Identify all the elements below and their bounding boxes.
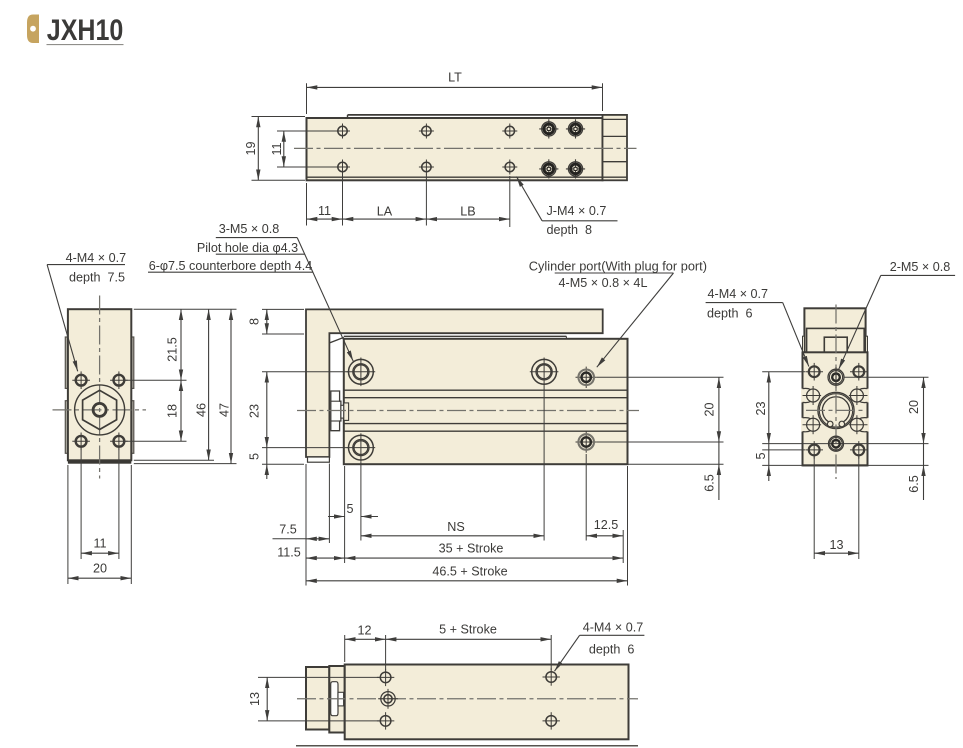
svg-text:11: 11 [318,204,331,218]
svg-text:5: 5 [346,502,353,516]
svg-text:depth 6: depth 6 [589,643,635,657]
svg-text:2-M5 × 0.8: 2-M5 × 0.8 [890,260,951,274]
svg-text:Cylinder port(With plug for po: Cylinder port(With plug for port) [529,259,707,273]
svg-text:7.5: 7.5 [279,523,297,537]
svg-text:J-M4 × 0.7: J-M4 × 0.7 [547,204,607,218]
svg-text:4-M4 × 0.7: 4-M4 × 0.7 [66,251,127,265]
svg-text:11: 11 [93,537,106,551]
svg-text:12.5: 12.5 [594,518,619,532]
svg-text:13: 13 [829,538,843,552]
svg-text:5: 5 [754,452,768,459]
svg-text:46.5 + Stroke: 46.5 + Stroke [432,565,507,579]
svg-text:LT: LT [448,71,462,85]
svg-text:6.5: 6.5 [702,474,716,492]
svg-text:23: 23 [754,401,768,415]
svg-text:21.5: 21.5 [166,337,180,362]
svg-text:11: 11 [270,142,284,155]
svg-text:5: 5 [248,453,262,460]
svg-text:3-M5 × 0.8: 3-M5 × 0.8 [219,222,280,236]
svg-text:LB: LB [460,204,475,218]
svg-text:13: 13 [248,692,262,706]
svg-text:20: 20 [702,402,716,416]
svg-text:depth 6: depth 6 [707,307,753,321]
svg-text:JXH10: JXH10 [47,14,124,47]
svg-text:35 + Stroke: 35 + Stroke [439,541,504,555]
svg-text:LA: LA [377,204,393,218]
svg-text:4-M5 × 0.8 × 4L: 4-M5 × 0.8 × 4L [559,276,648,290]
svg-text:12: 12 [357,624,371,638]
svg-text:20: 20 [93,562,107,576]
svg-text:Pilot hole dia φ4.3: Pilot hole dia φ4.3 [197,241,298,255]
svg-text:8: 8 [248,318,262,325]
svg-text:19: 19 [244,141,258,155]
svg-text:11.5: 11.5 [277,546,301,560]
svg-text:6-φ7.5 counterbore depth 4.4: 6-φ7.5 counterbore depth 4.4 [149,259,313,273]
svg-text:depth 7.5: depth 7.5 [69,271,125,285]
svg-text:20: 20 [907,400,921,414]
svg-text:47: 47 [218,403,232,417]
svg-text:6.5: 6.5 [907,475,921,493]
svg-text:depth 8: depth 8 [547,223,593,237]
svg-text:5 + Stroke: 5 + Stroke [439,623,497,637]
svg-text:NS: NS [447,520,465,534]
svg-text:46: 46 [194,403,208,417]
svg-text:4-M4 × 0.7: 4-M4 × 0.7 [708,287,769,301]
svg-text:18: 18 [166,404,180,418]
svg-text:4-M4 × 0.7: 4-M4 × 0.7 [583,621,644,635]
svg-text:23: 23 [248,404,262,418]
